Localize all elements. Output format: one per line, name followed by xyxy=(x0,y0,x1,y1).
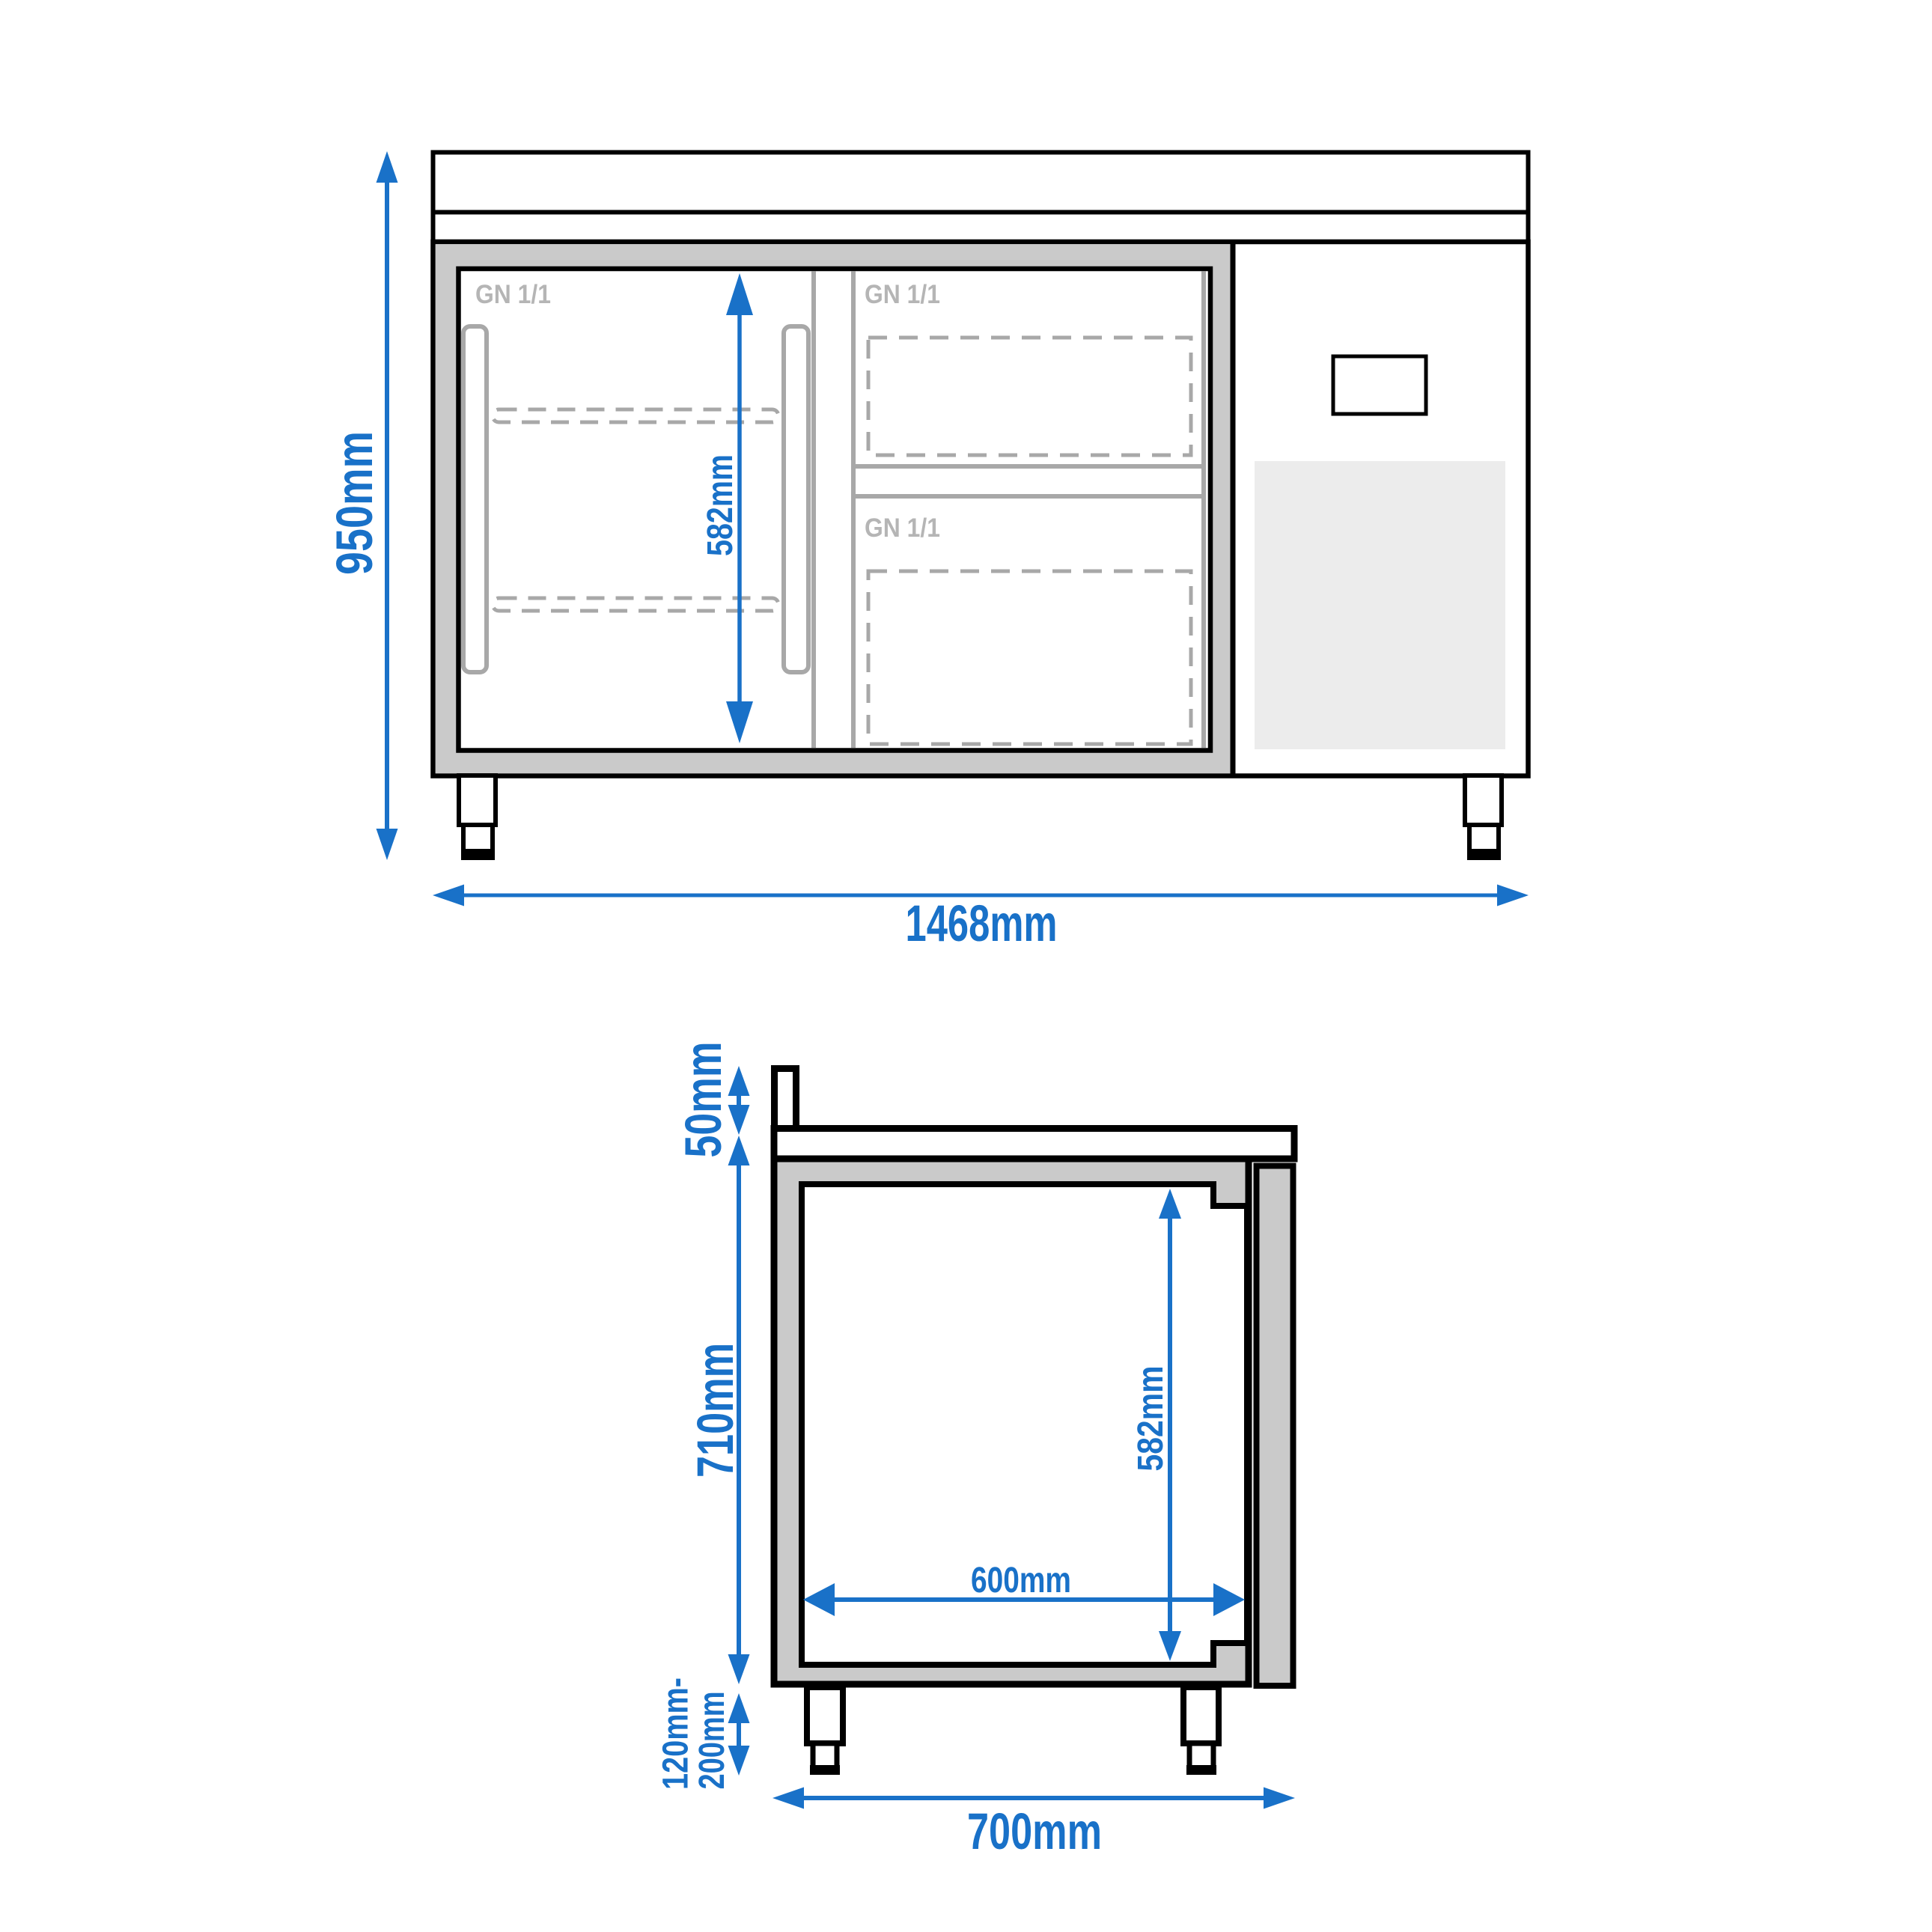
svg-text:GN 1/1: GN 1/1 xyxy=(475,280,551,309)
svg-text:600mm: 600mm xyxy=(971,1561,1071,1600)
svg-text:710mm: 710mm xyxy=(686,1343,744,1478)
svg-text:950mm: 950mm xyxy=(326,431,383,575)
svg-text:582mm: 582mm xyxy=(1131,1366,1171,1472)
svg-text:1468mm: 1468mm xyxy=(906,895,1058,952)
svg-text:50mm: 50mm xyxy=(674,1042,732,1158)
svg-text:GN 1/1: GN 1/1 xyxy=(865,280,940,309)
svg-text:700mm: 700mm xyxy=(967,1803,1102,1860)
svg-text:120mm-: 120mm- xyxy=(656,1677,696,1790)
svg-text:200mm: 200mm xyxy=(692,1692,732,1790)
svg-text:GN 1/1: GN 1/1 xyxy=(865,514,940,543)
svg-text:582mm: 582mm xyxy=(701,454,740,556)
